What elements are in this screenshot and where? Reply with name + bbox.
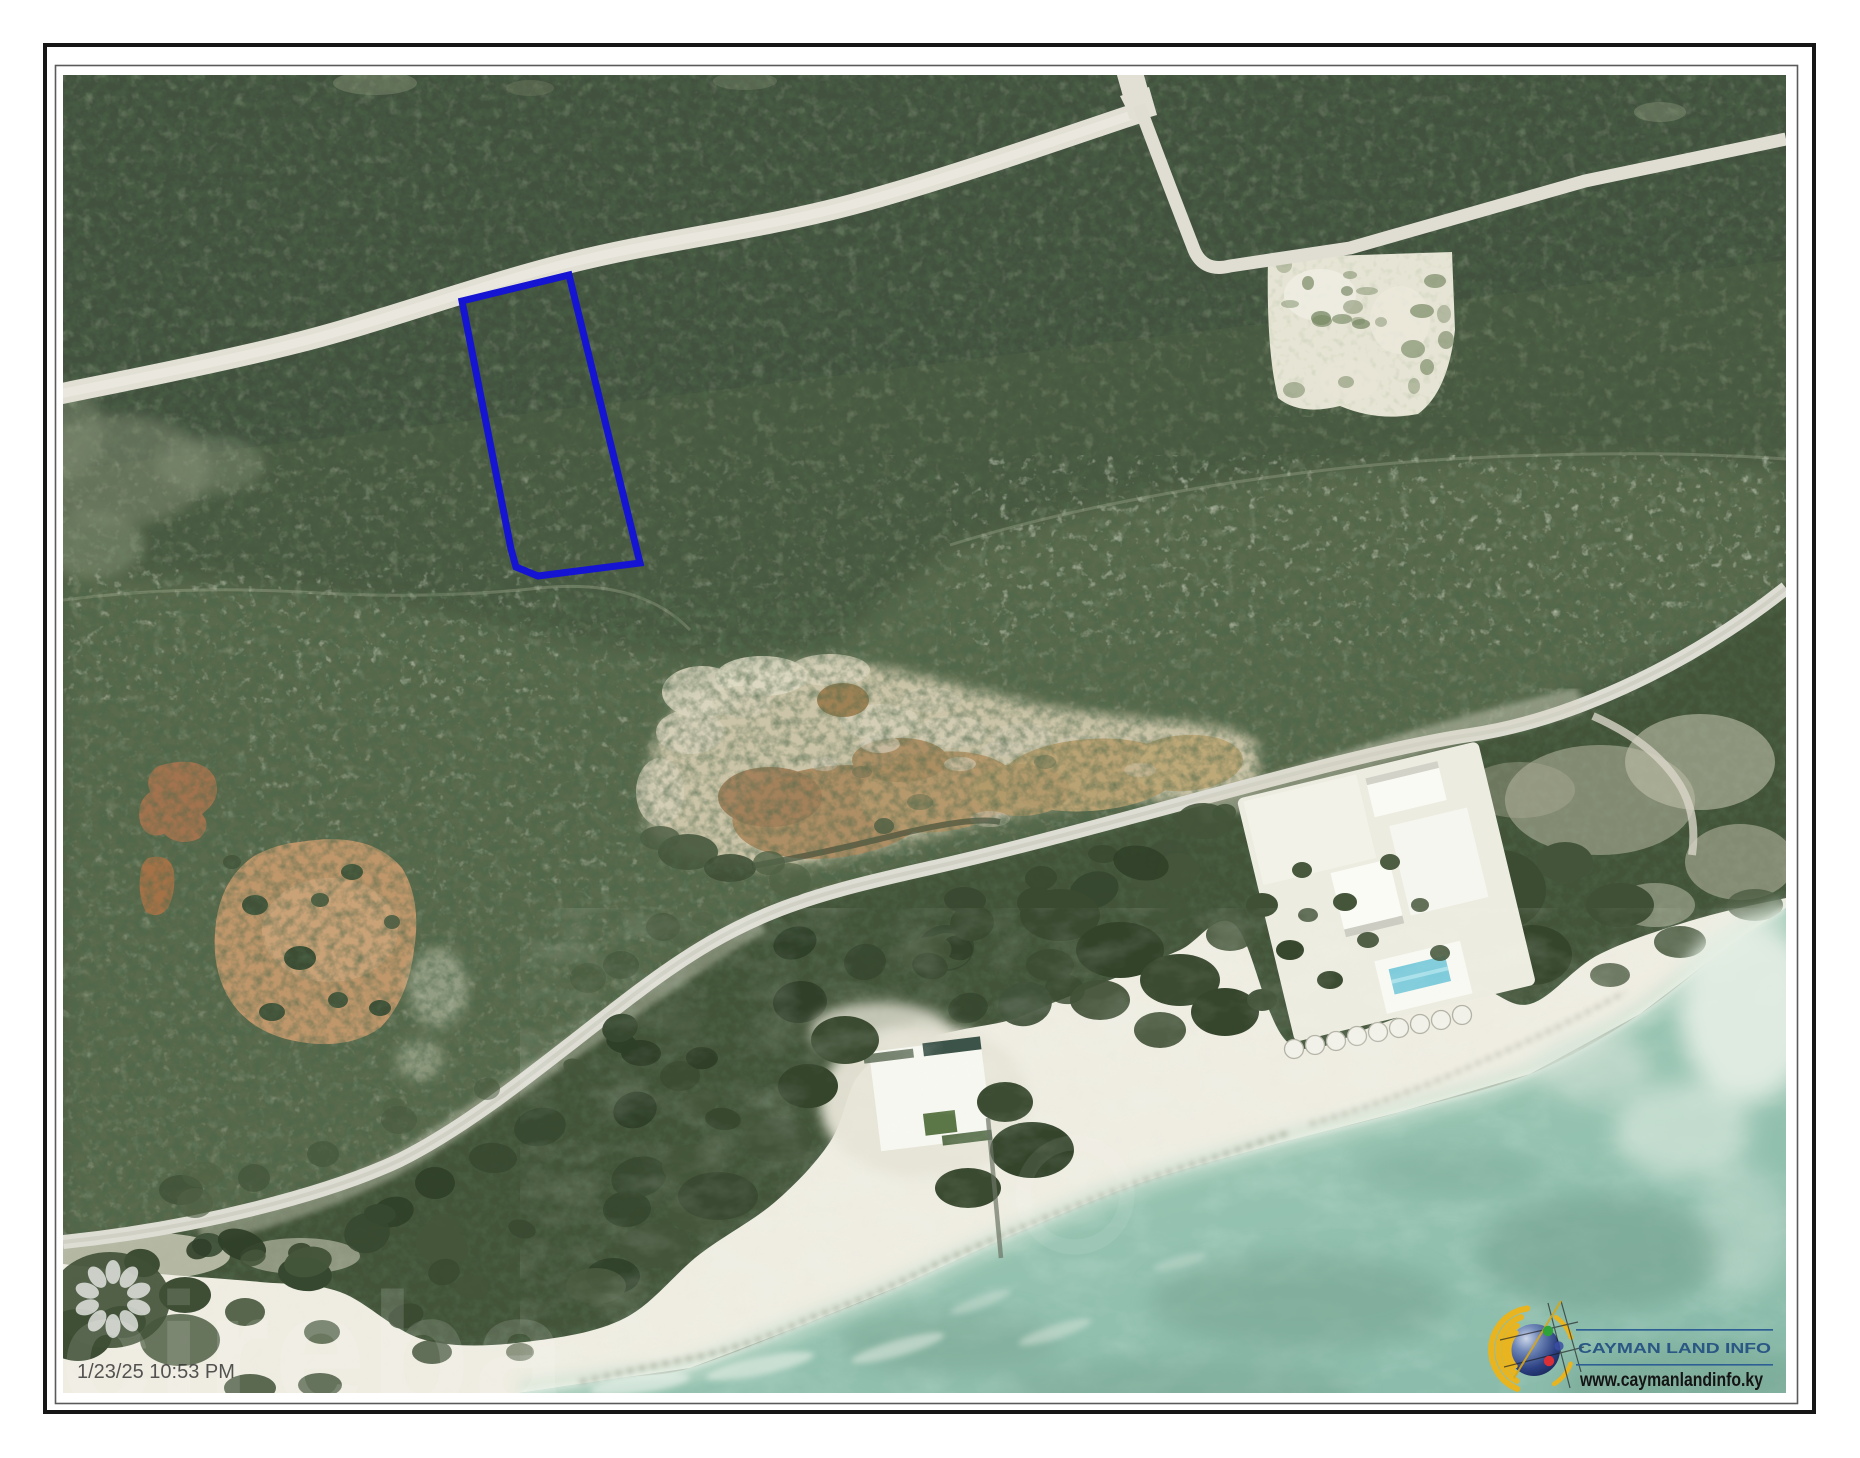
svg-text:cireba: cireba — [60, 1259, 570, 1443]
svg-text:CAYMAN LAND INFO: CAYMAN LAND INFO — [1578, 1340, 1771, 1357]
svg-text:www.caymanlandinfo.ky: www.caymanlandinfo.ky — [1579, 1370, 1763, 1391]
svg-text:1/23/25 10:53 PM: 1/23/25 10:53 PM — [77, 1361, 235, 1383]
